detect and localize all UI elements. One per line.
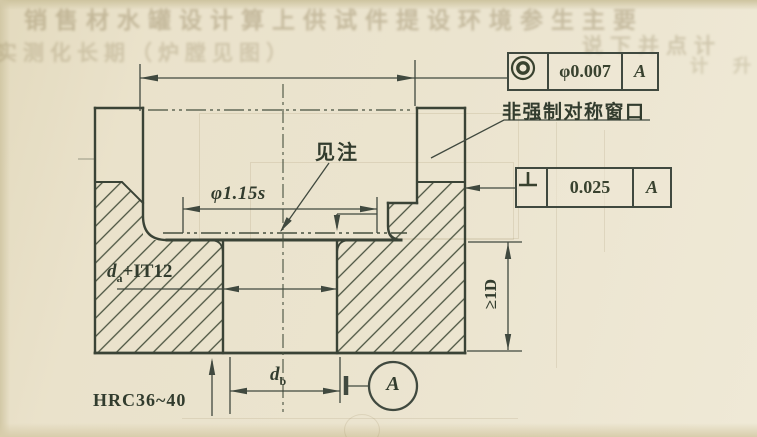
concentricity-datum: A (621, 54, 657, 89)
bottom-diameter-label: db (270, 364, 286, 389)
perpendicularity-datum: A (632, 169, 670, 206)
hole-diameter-label: da+IT12 (107, 261, 172, 286)
hole-diameter-suffix: +IT12 (123, 261, 173, 282)
datum-symbol (346, 362, 417, 410)
drawing-page: 销售材水罐设计算上供试件提设环境参生主要 实测化长期（炉膛见图） 说下并点计 计… (0, 0, 757, 437)
concentricity-tolerance: φ0.007 (547, 54, 621, 89)
ring-diameter-label: φ1.15s (211, 183, 266, 205)
fcf-perpendicularity: 0.025 A (515, 167, 672, 208)
bottom-diameter-base: d (270, 364, 280, 385)
bottom-diameter-sub: b (280, 374, 287, 388)
perpendicularity-icon (517, 169, 546, 206)
fcf-concentricity: φ0.007 A (507, 52, 659, 91)
concentricity-icon (509, 54, 547, 89)
hole-diameter-base: d (107, 261, 117, 282)
window-note-label: 非强制对称窗口 (502, 97, 646, 124)
min-depth-label: ≥1D (481, 272, 501, 316)
see-note-label: 见注 (315, 136, 359, 165)
datum-circle-label: A (383, 373, 403, 396)
perpendicularity-tolerance: 0.025 (546, 169, 632, 206)
hardness-label: HRC36~40 (93, 390, 186, 411)
